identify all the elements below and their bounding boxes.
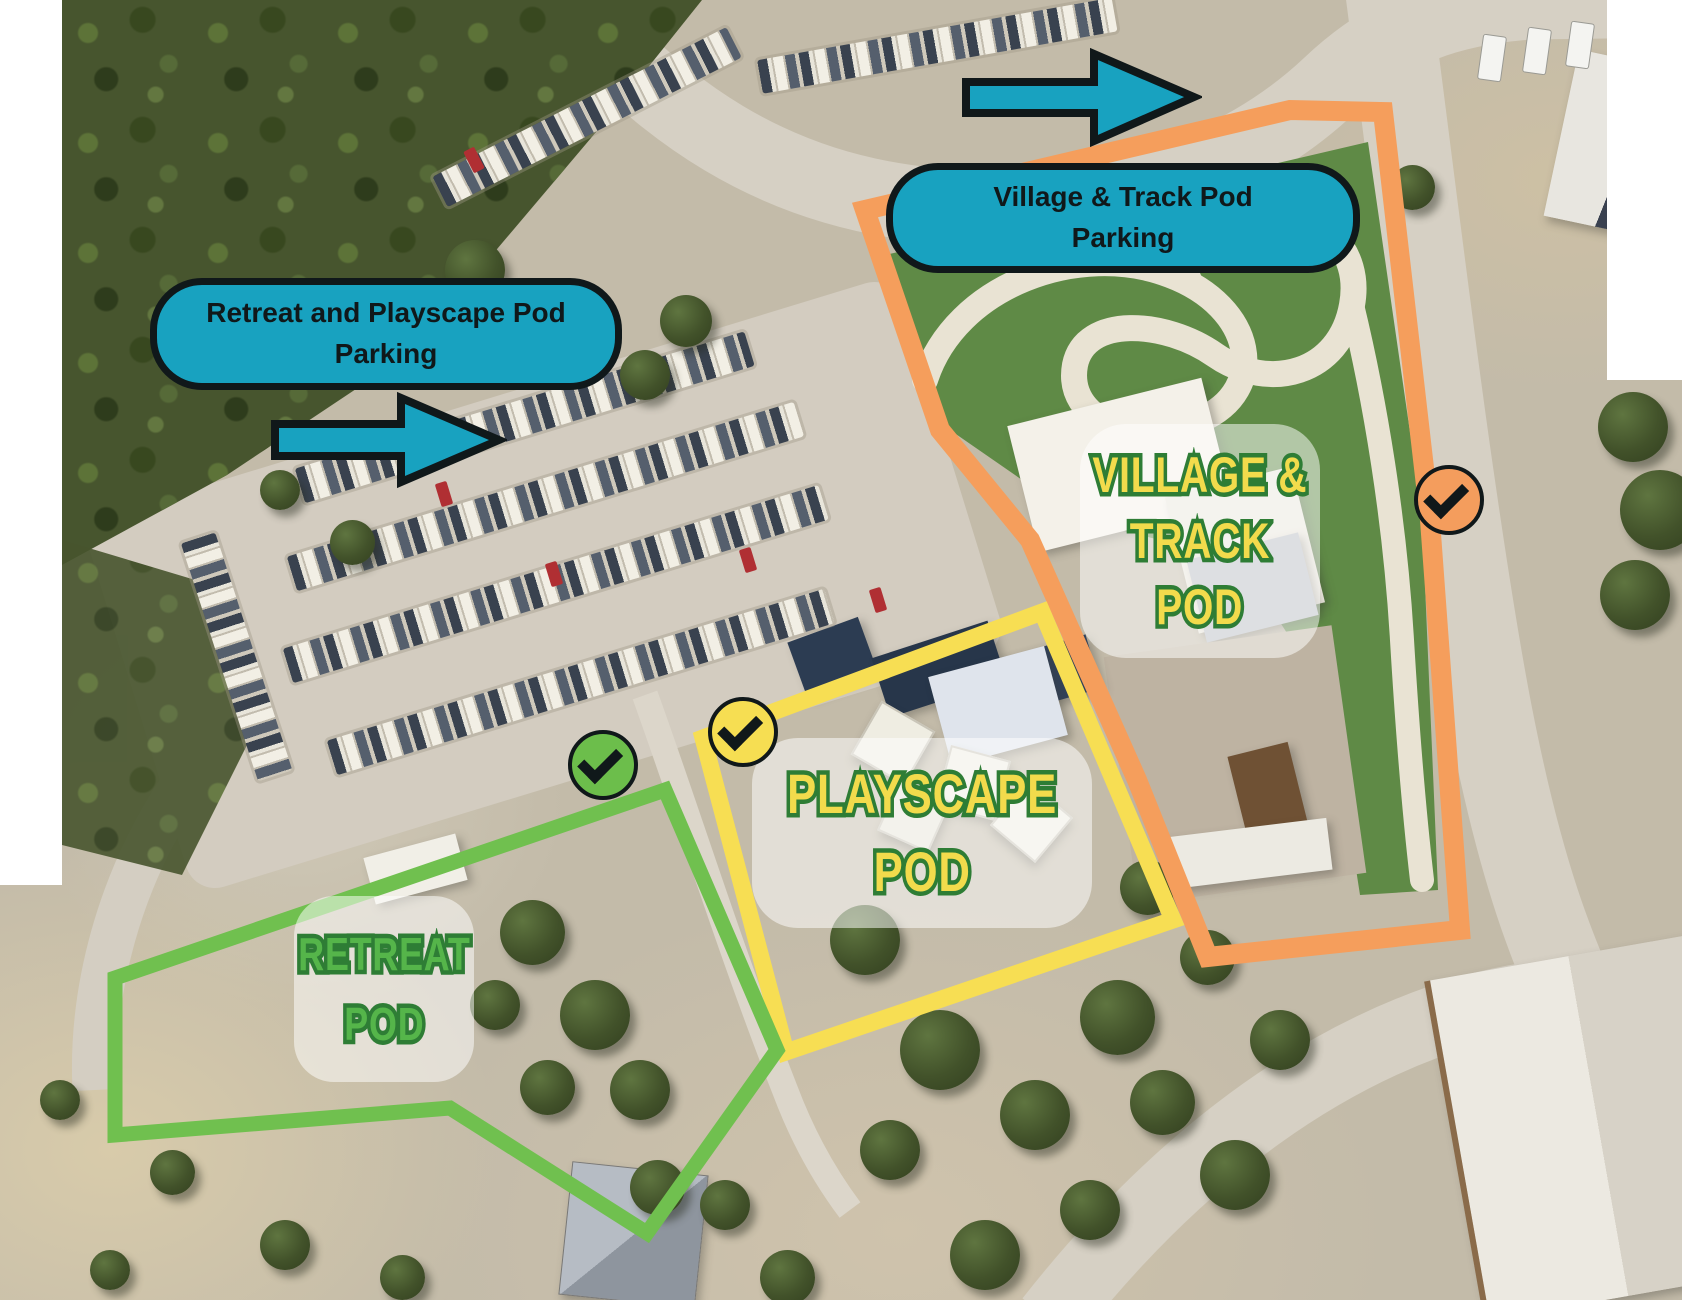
pod-label-line: POD: [1157, 574, 1244, 640]
callout-line: Retreat and Playscape Pod: [157, 298, 615, 329]
playscape-pod-checkmark: [708, 697, 778, 767]
check-icon: [1423, 473, 1469, 519]
pod-label-line: TRACK: [1130, 508, 1270, 574]
village-track-pod-checkmark: [1414, 465, 1484, 535]
pod-label-line: PLAYSCAPE: [787, 755, 1057, 833]
pod-label-line: POD: [344, 989, 424, 1059]
playscape-pod-label-panel: PLAYSCAPE POD: [752, 738, 1092, 928]
village-track-pod-label-panel: VILLAGE & TRACK POD: [1080, 424, 1320, 658]
check-icon: [577, 738, 623, 784]
callout-line: Village & Track Pod: [893, 182, 1353, 213]
retreat-playscape-parking-callout: Retreat and Playscape Pod Parking: [150, 278, 622, 390]
retreat-pod-label-panel: RETREAT POD: [294, 896, 474, 1082]
village-track-parking-callout: Village & Track Pod Parking: [886, 163, 1360, 273]
right-arrow-icon: [271, 388, 507, 492]
pod-label-line: RETREAT: [298, 919, 470, 989]
pod-label-line: VILLAGE &: [1092, 442, 1307, 508]
check-icon: [717, 705, 763, 751]
retreat-pod-checkmark: [568, 730, 638, 800]
pod-boundaries: [0, 0, 1682, 1300]
camp-parking-map: VILLAGE & TRACK POD PLAYSCAPE POD RETREA…: [0, 0, 1682, 1300]
callout-line: Parking: [157, 339, 615, 370]
callout-line: Parking: [893, 223, 1353, 254]
pod-label-line: POD: [873, 833, 970, 911]
right-arrow-icon: [962, 44, 1202, 151]
